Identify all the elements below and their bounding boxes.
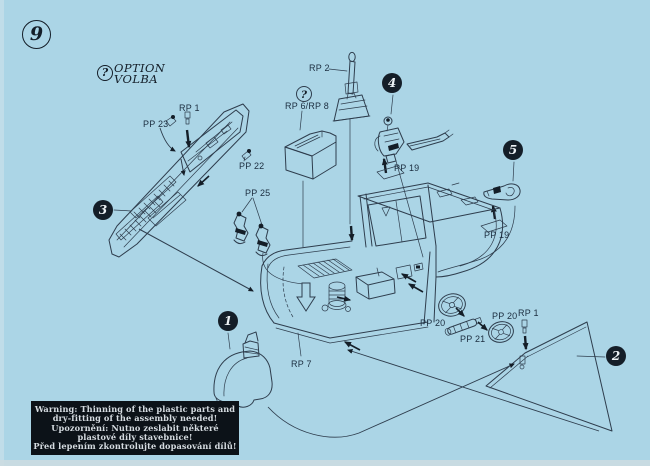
control-stand-drawing [375, 95, 453, 257]
step-disc-4: 4 [382, 73, 402, 93]
part-label-pp19-right: PP 19 [484, 231, 509, 240]
console-question-icon: ? [301, 89, 308, 101]
warning-line4: Před lepením zkontrolujte dopasování díl… [33, 442, 237, 451]
part-label-rp7: RP 7 [291, 360, 312, 369]
part-label-rp2: RP 2 [309, 64, 330, 73]
part-label-pp23: PP 23 [143, 120, 168, 129]
cab-assembly-drawing [261, 183, 503, 343]
part-label-pp20-left: PP 20 [420, 319, 445, 328]
step-number-badge: 9 [22, 20, 51, 49]
scan-edge-left [0, 0, 4, 466]
part-label-pp25: PP 25 [245, 189, 270, 198]
door-panel-drawing [109, 104, 249, 257]
part-label-rp1-right: RP 1 [518, 309, 539, 318]
part-label-pp20-right: PP 20 [492, 312, 517, 321]
warning-line3: Upozornění: Nutno zeslabit některé plast… [33, 424, 237, 443]
option-question-icon: ? [97, 65, 113, 81]
part-rp1-top-drawing [185, 112, 190, 147]
part-label-pp21: PP 21 [460, 335, 485, 344]
part-label-pp19-upper: PP 19 [394, 164, 419, 173]
part-label-rp1-top: RP 1 [179, 104, 200, 113]
console-option-marker: ? [297, 87, 312, 102]
option-legend-line2: VOLBA [114, 74, 165, 85]
console-box-drawing [285, 111, 336, 247]
fender-drawing [214, 332, 272, 410]
step-disc-3: 3 [93, 200, 113, 220]
step-disc-2: 2 [606, 346, 626, 366]
part-label-pp22: PP 22 [239, 162, 264, 171]
step-disc-1: 1 [218, 311, 238, 331]
bracket-part-drawing [438, 162, 520, 272]
disc-leader-lines [114, 210, 132, 211]
parts-pp25-drawing [234, 198, 303, 284]
step-disc-5: 5 [503, 140, 523, 160]
gear-lever-drawing [329, 52, 370, 240]
part-label-rp6-rp8: RP 6/RP 8 [285, 102, 329, 111]
option-legend: OPTION VOLBA [114, 63, 165, 85]
scan-edge-bottom [0, 460, 650, 466]
part-pp22-drawing [242, 149, 251, 161]
warning-box: Warning: Thinning of the plastic parts a… [31, 401, 239, 455]
instruction-sheet: ? 9 ? OPTION VOLBA PP 23 RP 1 PP 22 PP 2… [0, 0, 650, 466]
